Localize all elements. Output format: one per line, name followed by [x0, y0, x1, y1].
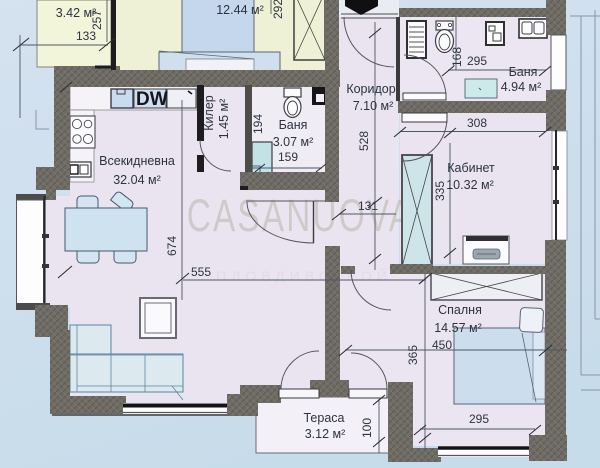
- svg-text:450: 450: [432, 338, 452, 352]
- svg-text:Килер: Килер: [202, 95, 216, 131]
- svg-text:Баня: Баня: [509, 65, 538, 79]
- svg-text:Всекидневна: Всекидневна: [99, 154, 175, 168]
- svg-text:Баня: Баня: [279, 118, 308, 132]
- svg-text:4.94 м²: 4.94 м²: [501, 80, 542, 94]
- svg-text:Коридор: Коридор: [346, 82, 395, 96]
- svg-text:10.32 м²: 10.32 м²: [446, 178, 494, 192]
- svg-text:DW: DW: [136, 89, 168, 110]
- svg-text:674: 674: [165, 236, 179, 256]
- svg-text:194: 194: [251, 114, 265, 134]
- svg-text:Кабинет: Кабинет: [447, 161, 495, 175]
- svg-text:308: 308: [467, 116, 487, 130]
- svg-text:528: 528: [357, 131, 371, 151]
- svg-text:14.57 м²: 14.57 м²: [434, 321, 482, 335]
- svg-text:292: 292: [271, 0, 285, 19]
- svg-text:1.45 м²: 1.45 м²: [217, 99, 231, 140]
- svg-text:12.44 м²: 12.44 м²: [216, 3, 264, 17]
- svg-text:133: 133: [76, 29, 96, 43]
- svg-text:257: 257: [90, 10, 104, 30]
- svg-text:100: 100: [360, 418, 374, 438]
- svg-text:Спалня: Спалня: [438, 303, 482, 317]
- svg-text:365: 365: [406, 345, 420, 365]
- svg-text:3.07 м²: 3.07 м²: [273, 135, 314, 149]
- svg-text:295: 295: [469, 412, 489, 426]
- svg-text:32.04 м²: 32.04 м²: [113, 173, 161, 187]
- svg-text:555: 555: [191, 265, 211, 279]
- svg-text:Тераса: Тераса: [304, 411, 345, 425]
- svg-text:ПЛОВДИВСТРОЙ: ПЛОВДИВСТРОЙ: [216, 267, 392, 284]
- svg-text:131: 131: [358, 199, 378, 213]
- svg-text:7.10 м²: 7.10 м²: [353, 99, 394, 113]
- svg-text:3.12 м²: 3.12 м²: [305, 427, 346, 441]
- svg-text:159: 159: [278, 150, 298, 164]
- svg-text:295: 295: [467, 54, 487, 68]
- svg-text:168: 168: [450, 47, 464, 67]
- svg-text:335: 335: [433, 181, 447, 201]
